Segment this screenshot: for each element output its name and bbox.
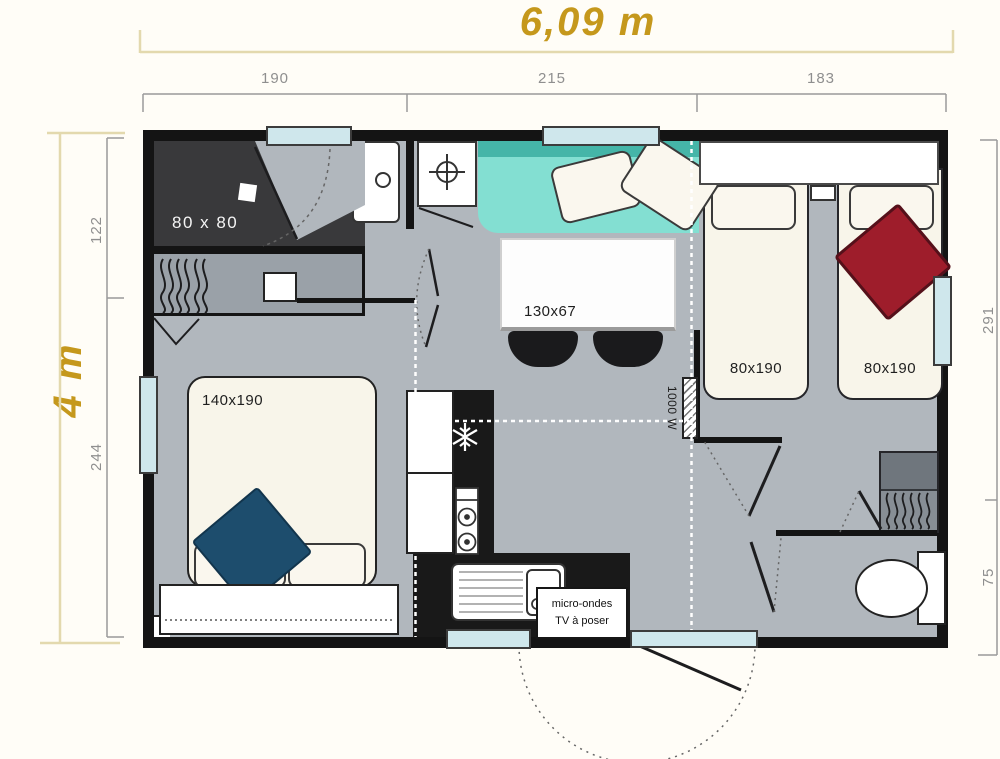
toilet-bowl xyxy=(855,559,928,618)
dim-left-244: 244 xyxy=(78,437,114,477)
overhead-shelf xyxy=(699,141,939,185)
kitchen-note-line2: TV à poser xyxy=(555,613,609,630)
bed-master-footboard xyxy=(159,584,399,635)
bathroom-sink xyxy=(352,141,400,223)
window-left xyxy=(139,376,158,474)
bed-right-label: 80x190 xyxy=(837,360,943,377)
window-top-center xyxy=(542,126,660,146)
wall-bathroom xyxy=(406,141,414,229)
bed-left-label: 80x190 xyxy=(703,360,809,377)
pillow-bed-left xyxy=(711,185,796,230)
master-bed-label: 140x190 xyxy=(202,392,263,409)
window-bottom xyxy=(446,629,531,649)
dim-right-291: 291 xyxy=(970,300,1000,340)
wall-master-bedroom xyxy=(297,298,415,303)
bedroom-divider-cap xyxy=(810,185,836,201)
total-height-label: 4 m xyxy=(26,328,110,432)
wardrobe-right-shelf xyxy=(881,453,937,491)
kitchen-note: micro-ondes TV à poser xyxy=(536,587,628,639)
dim-top-215: 215 xyxy=(522,70,582,87)
water-heater xyxy=(417,141,477,207)
dim-left-122: 122 xyxy=(78,210,114,250)
wall-wc xyxy=(776,530,937,536)
floorplan-canvas: 6,09 m 4 m 190 215 183 122 244 291 75 xyxy=(0,0,1000,759)
kitchen-note-line1: micro-ondes xyxy=(552,596,613,613)
fridge-divider xyxy=(408,472,452,474)
dim-top-190: 190 xyxy=(245,70,305,87)
fridge xyxy=(406,390,454,554)
window-right xyxy=(933,276,952,366)
window-top-left xyxy=(266,126,352,146)
wardrobe-right xyxy=(879,451,939,533)
nightstand-shelf xyxy=(263,272,297,302)
wall-hall-horiz xyxy=(694,437,782,443)
shower-drain xyxy=(238,183,257,202)
dim-right-75: 75 xyxy=(970,557,1000,597)
entrance-door-glass xyxy=(630,630,758,648)
heater-label: 1000 W xyxy=(642,378,702,438)
bathroom-partition-strip xyxy=(154,246,365,254)
total-width-label: 6,09 m xyxy=(438,0,738,45)
table-label: 130x67 xyxy=(524,303,576,320)
shower-label: 80 x 80 xyxy=(172,213,238,233)
wardrobe-left xyxy=(154,254,365,316)
dim-top-183: 183 xyxy=(791,70,851,87)
kitchen-counter-vertical xyxy=(454,390,494,554)
